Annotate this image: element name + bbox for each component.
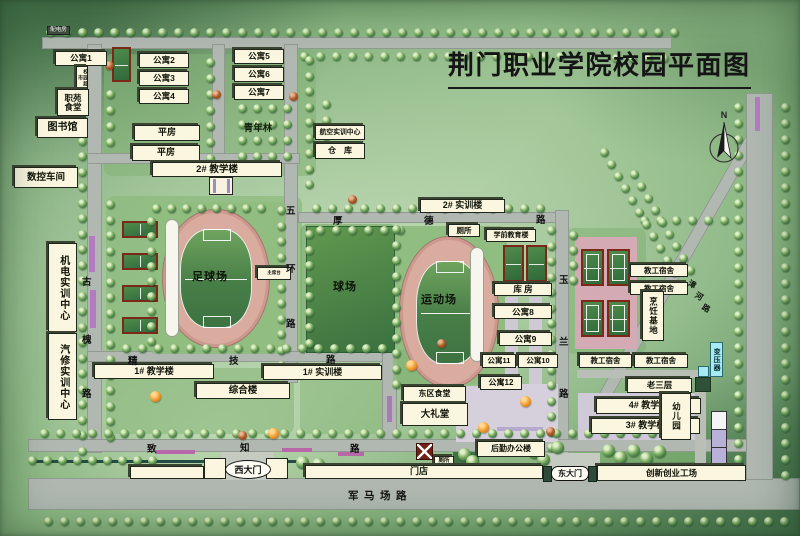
tree	[569, 231, 578, 240]
tree	[392, 241, 401, 250]
stadium-stand-football	[165, 219, 179, 337]
tree	[277, 284, 286, 293]
tree	[460, 517, 469, 526]
building-gongyu-3: 公寓3	[139, 71, 189, 86]
west-gate-post	[204, 458, 226, 479]
tree	[670, 28, 679, 37]
tree	[206, 74, 215, 83]
tree	[140, 517, 149, 526]
tree	[104, 429, 113, 438]
tree	[106, 309, 115, 318]
road-name-char: 致	[147, 441, 157, 455]
building-cesuo-north: 厕所	[448, 224, 480, 237]
road-name-char: 马	[364, 488, 375, 503]
tree	[88, 429, 97, 438]
orange-tree	[150, 391, 161, 402]
road-name-char: 河	[693, 290, 705, 304]
tree	[305, 230, 314, 239]
shrub	[614, 451, 627, 464]
tree	[781, 407, 790, 416]
planter-h	[90, 290, 96, 328]
tree	[781, 263, 790, 272]
stadium-label-sportsground: 运动场	[421, 291, 457, 307]
tree	[378, 344, 387, 353]
tree	[78, 245, 87, 254]
tree	[58, 456, 67, 465]
tree	[152, 429, 161, 438]
tree	[344, 204, 353, 213]
tree	[78, 152, 87, 161]
planter-f	[387, 396, 392, 422]
tree	[644, 194, 653, 203]
tree	[253, 152, 262, 161]
court-preschool-2	[526, 245, 547, 282]
tree	[364, 52, 373, 61]
tree	[781, 231, 790, 240]
tree	[520, 429, 529, 438]
tree	[462, 28, 471, 37]
tree	[76, 517, 85, 526]
tree	[328, 429, 337, 438]
tree	[108, 517, 117, 526]
tree	[392, 349, 401, 358]
building-jidian-shixun: 机电实训中心	[48, 243, 77, 332]
tree	[734, 439, 743, 448]
tree	[332, 517, 341, 526]
tree	[186, 344, 195, 353]
tree	[147, 292, 156, 301]
tree	[43, 456, 52, 465]
red-tree	[546, 427, 555, 436]
tree	[106, 278, 115, 287]
compass-needle-icon	[703, 120, 745, 166]
tree	[392, 334, 401, 343]
tree	[392, 429, 401, 438]
tree	[476, 517, 485, 526]
building-gongyu-10: 公寓10	[518, 354, 558, 368]
building-gongyu-2: 公寓2	[139, 53, 189, 68]
tree	[398, 28, 407, 37]
tree	[547, 381, 556, 390]
road-name-char: 槐	[82, 332, 92, 346]
tree	[396, 517, 405, 526]
shrub	[602, 444, 615, 457]
tree	[547, 273, 556, 282]
tree	[348, 52, 357, 61]
building-shixunlou-2: 2# 实训楼	[420, 199, 505, 213]
building-gongyu-12: 公寓12	[480, 376, 522, 390]
tree	[78, 28, 87, 37]
tree	[734, 455, 743, 464]
field-centerline	[421, 313, 477, 314]
tree	[620, 517, 629, 526]
tree	[316, 226, 325, 235]
tree	[734, 423, 743, 432]
tree	[238, 28, 247, 37]
building-mendian: 门店	[405, 466, 433, 478]
tree	[147, 217, 156, 226]
tree	[253, 136, 262, 145]
tree	[428, 52, 437, 61]
tree	[28, 456, 37, 465]
tree	[781, 359, 790, 368]
tree	[344, 429, 353, 438]
tree	[547, 397, 556, 406]
road-name-char: 路	[326, 352, 336, 366]
tree	[138, 344, 147, 353]
planter-g	[89, 236, 95, 272]
building-gongyu-1: 公寓1	[55, 51, 107, 66]
tree	[106, 138, 115, 147]
tree	[542, 28, 551, 37]
tree	[734, 327, 743, 336]
tree	[136, 429, 145, 438]
tree	[248, 429, 257, 438]
tree	[206, 28, 215, 37]
tree	[572, 517, 581, 526]
tree	[148, 456, 157, 465]
building-tushuguan: 图书馆	[37, 118, 88, 138]
goal-box	[203, 316, 231, 328]
building-pingfang-1: 平房	[134, 125, 200, 141]
tall-building-divider1	[711, 429, 727, 430]
tree	[147, 277, 156, 286]
tree	[305, 180, 314, 189]
tree	[78, 416, 87, 425]
shrub	[551, 441, 564, 454]
tree	[106, 200, 115, 209]
tree	[734, 215, 743, 224]
tree	[492, 517, 501, 526]
tree	[781, 295, 790, 304]
tree	[147, 337, 156, 346]
court-preschool-1	[503, 245, 524, 282]
tree	[651, 206, 660, 215]
tree	[488, 429, 497, 438]
red-tree	[212, 90, 221, 99]
tree	[302, 28, 311, 37]
pillar-b	[227, 179, 230, 193]
tree	[424, 429, 433, 438]
building-houqin-bangonglou: 后勤办公楼	[477, 441, 545, 457]
tree	[206, 122, 215, 131]
road-name-char: 场	[380, 488, 391, 503]
tree	[283, 136, 292, 145]
shrub	[653, 445, 666, 458]
road-name-char: 路	[82, 386, 92, 400]
tree	[277, 237, 286, 246]
tree	[147, 307, 156, 316]
tree	[781, 327, 790, 336]
tree	[716, 517, 725, 526]
building-xiaoyuan-chaoshi: 校园超市	[76, 66, 88, 90]
tree	[734, 231, 743, 240]
tree	[92, 517, 101, 526]
tree	[781, 311, 790, 320]
tree	[396, 52, 405, 61]
tree	[781, 471, 790, 480]
tree	[168, 429, 177, 438]
tree	[781, 167, 790, 176]
building-peidianfang: 配电房	[47, 26, 70, 35]
tree	[106, 122, 115, 131]
campus-map: 荆门职业学院校园平面图 N 足球场运动场球场配电房公寓1公寓2公寓3公寓4公寓5…	[0, 0, 800, 536]
tree	[658, 218, 667, 227]
tree	[376, 429, 385, 438]
tree	[106, 293, 115, 302]
tree	[781, 375, 790, 384]
tree	[408, 204, 417, 213]
tree	[494, 28, 503, 37]
tree	[734, 247, 743, 256]
building-cangku: 仓 库	[315, 143, 365, 159]
tree	[628, 196, 637, 205]
tree	[118, 456, 127, 465]
tree	[590, 28, 599, 37]
tree	[78, 447, 87, 456]
road-east-avenue	[746, 93, 773, 480]
red-tree	[238, 431, 247, 440]
road-name-char: 环	[286, 261, 296, 275]
road-name-char: 技	[229, 353, 239, 367]
tree	[346, 344, 355, 353]
tree	[392, 365, 401, 374]
building-chuangxin-gongchang: 创新创业工场	[597, 465, 746, 481]
map-title: 荆门职业学院校园平面图	[448, 45, 751, 89]
tree	[392, 380, 401, 389]
tree	[414, 28, 423, 37]
tree	[220, 517, 229, 526]
tree	[649, 232, 658, 241]
transformer-pad	[698, 366, 709, 377]
tree	[635, 208, 644, 217]
tree	[305, 277, 314, 286]
tree	[688, 216, 697, 225]
road-name-char: 路	[286, 316, 296, 330]
tree	[254, 28, 263, 37]
tree	[277, 330, 286, 339]
building-dalitang: 大礼堂	[402, 403, 468, 426]
tree	[332, 226, 341, 235]
shrub	[640, 452, 653, 465]
tree	[238, 152, 247, 161]
tree	[305, 323, 314, 332]
tree	[547, 257, 556, 266]
tree	[569, 246, 578, 255]
tree	[547, 412, 556, 421]
road-name-char: 军	[348, 488, 359, 503]
tree	[277, 315, 286, 324]
tree	[600, 148, 609, 157]
tree	[170, 344, 179, 353]
stadium-stand-sportsground	[470, 247, 484, 362]
building-youeryuan: 幼儿园	[661, 393, 691, 440]
building-jiaogong-sushe-1: 教工宿舍	[630, 264, 688, 277]
tree	[106, 340, 115, 349]
tree	[206, 138, 215, 147]
building-qixiu-shixun: 汽修实训中心	[48, 333, 77, 420]
red-tree	[437, 339, 446, 348]
tree	[456, 429, 465, 438]
tree	[106, 231, 115, 240]
tree	[637, 182, 646, 191]
tree	[305, 72, 314, 81]
tree	[540, 517, 549, 526]
building-laosanceng: 老三层	[627, 378, 692, 393]
tree	[296, 429, 305, 438]
ballfield-label: 球场	[333, 278, 357, 294]
red-tree	[289, 92, 298, 101]
tree	[120, 429, 129, 438]
tree	[268, 152, 277, 161]
tree	[222, 28, 231, 37]
tree	[305, 56, 314, 65]
tree	[305, 134, 314, 143]
tennis-2	[607, 249, 630, 286]
red-tree	[348, 195, 357, 204]
tree	[654, 28, 663, 37]
tree	[106, 262, 115, 271]
road-zhizhi	[28, 439, 755, 452]
tree	[283, 152, 292, 161]
tree	[206, 106, 215, 115]
shrub	[627, 444, 640, 457]
tree	[106, 417, 115, 426]
tree	[268, 104, 277, 113]
road-junmachang	[28, 478, 800, 510]
tree	[212, 204, 221, 213]
building-pengren-jidi: 烹饪基地	[642, 291, 664, 341]
tree	[734, 279, 743, 288]
tree	[305, 149, 314, 158]
tree	[781, 151, 790, 160]
tree	[636, 517, 645, 526]
tree	[446, 28, 455, 37]
tree	[569, 261, 578, 270]
tree	[604, 517, 613, 526]
tree	[73, 456, 82, 465]
tree	[283, 104, 292, 113]
tree	[781, 119, 790, 128]
building-jiaogong-sushe-4: 教工宿舍	[634, 354, 688, 368]
tree	[652, 517, 661, 526]
compass: N	[700, 110, 748, 171]
tree	[44, 517, 53, 526]
tree	[305, 165, 314, 174]
east-gate-label: 东大门	[551, 466, 589, 481]
building-gongyu-9: 公寓9	[499, 332, 552, 346]
tree	[78, 400, 87, 409]
tree	[216, 429, 225, 438]
tree	[78, 292, 87, 301]
tree	[305, 261, 314, 270]
tree	[734, 359, 743, 368]
tree	[284, 517, 293, 526]
tree	[684, 517, 693, 526]
tree	[122, 344, 131, 353]
road-name-char: 路	[536, 212, 546, 226]
tree	[781, 183, 790, 192]
tree	[781, 343, 790, 352]
tree	[588, 517, 597, 526]
tree	[328, 204, 337, 213]
tree	[366, 28, 375, 37]
tree	[780, 517, 789, 526]
building-gongyu-8: 公寓8	[494, 305, 552, 319]
building-gongyu-7: 公寓7	[234, 85, 284, 100]
tree	[270, 28, 279, 37]
tree	[147, 262, 156, 271]
tree	[642, 220, 651, 229]
tree	[392, 318, 401, 327]
tree	[182, 204, 191, 213]
tree	[392, 204, 401, 213]
tree	[510, 28, 519, 37]
tree	[672, 216, 681, 225]
tree	[300, 517, 309, 526]
tree	[147, 232, 156, 241]
court-top-left	[112, 47, 131, 82]
goal-box	[436, 261, 464, 273]
tree	[238, 104, 247, 113]
road-name-char: 精	[128, 353, 138, 367]
tree	[126, 28, 135, 37]
tree	[380, 226, 389, 235]
tree	[106, 247, 115, 256]
tree	[508, 517, 517, 526]
tree	[362, 344, 371, 353]
building-gongyu-5: 公寓5	[234, 49, 284, 64]
tree	[250, 344, 259, 353]
tree	[242, 204, 251, 213]
tree	[748, 517, 757, 526]
tree	[665, 230, 674, 239]
tree	[78, 183, 87, 192]
tree	[558, 28, 567, 37]
building-jiaogong-sushe-3: 教工宿舍	[579, 354, 632, 368]
tree	[536, 429, 545, 438]
stadium-label-football: 足球场	[192, 268, 228, 284]
tree	[78, 323, 87, 332]
tree	[732, 517, 741, 526]
tree	[348, 517, 357, 526]
tree	[504, 429, 513, 438]
tree	[277, 253, 286, 262]
orange-tree	[478, 422, 489, 433]
tree	[380, 52, 389, 61]
road-name-char: 路	[396, 488, 407, 503]
tree	[133, 456, 142, 465]
tree	[720, 216, 729, 225]
tree	[734, 263, 743, 272]
tree	[350, 28, 359, 37]
walkway-east-a	[577, 370, 705, 378]
tree	[520, 204, 529, 213]
planter-i	[755, 97, 760, 131]
tree	[781, 439, 790, 448]
tree	[781, 199, 790, 208]
tree	[206, 58, 215, 67]
tree	[312, 429, 321, 438]
tree	[734, 407, 743, 416]
tree	[382, 28, 391, 37]
tree	[197, 204, 206, 213]
pillar-a	[213, 179, 216, 193]
tree	[305, 87, 314, 96]
tree	[734, 375, 743, 384]
tree	[704, 216, 713, 225]
tree	[147, 322, 156, 331]
